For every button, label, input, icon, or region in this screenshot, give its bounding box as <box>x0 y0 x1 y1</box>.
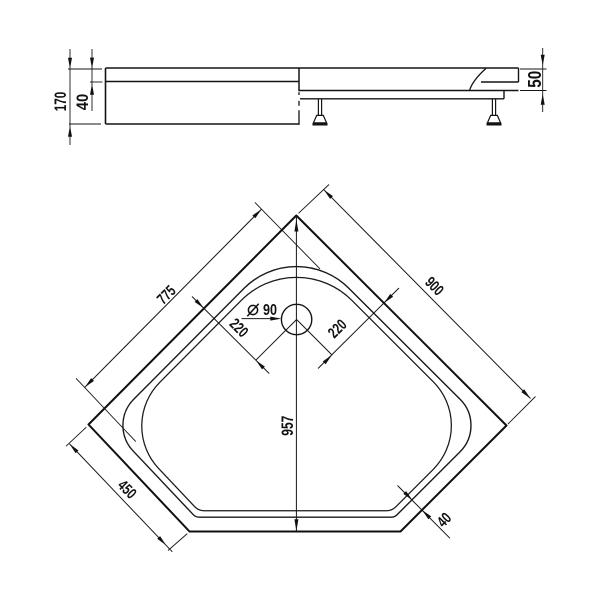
svg-text:957: 957 <box>279 416 297 436</box>
svg-text:50: 50 <box>525 71 545 88</box>
svg-text:40: 40 <box>74 94 92 111</box>
svg-text:170: 170 <box>52 92 70 112</box>
svg-text:90: 90 <box>263 302 277 319</box>
